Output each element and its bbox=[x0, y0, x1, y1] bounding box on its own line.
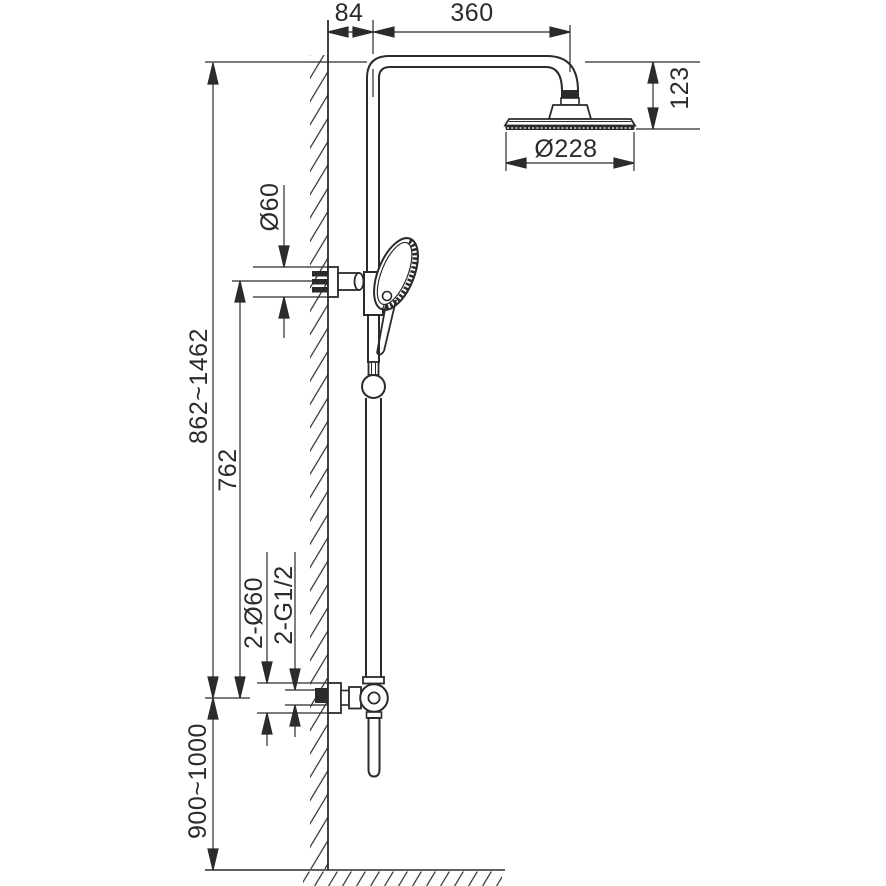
dim-thread-label: 2-G1/2 bbox=[270, 565, 298, 644]
bracket-escutcheon bbox=[328, 267, 338, 297]
dim-mixer-height-label: 900~1000 bbox=[184, 723, 212, 839]
technical-drawing: 84 360 Ø228 123 Ø60 862~1462 762 2-Ø60 2… bbox=[0, 0, 886, 886]
dim-wall-offset-label: 84 bbox=[335, 0, 364, 27]
mixer-escutcheon bbox=[328, 683, 341, 713]
slider-knob bbox=[362, 375, 385, 398]
wall-hatch bbox=[310, 55, 328, 869]
dim-escutcheon-label: 2-Ø60 bbox=[240, 577, 268, 649]
hand-shower-hook-hole bbox=[383, 292, 392, 301]
dim-arm-length-label: 360 bbox=[450, 0, 493, 27]
dim-holder-diameter-label: Ø60 bbox=[256, 183, 284, 232]
floor-hatch bbox=[303, 872, 502, 886]
dim-head-diameter-label: Ø228 bbox=[534, 135, 597, 163]
mixer-top-flange bbox=[363, 677, 384, 684]
head-cone bbox=[549, 105, 591, 119]
mixer-connector bbox=[341, 691, 349, 706]
dim-column-range-label: 862~1462 bbox=[185, 328, 213, 444]
anchor-rib bbox=[312, 279, 328, 285]
mixer-nut bbox=[349, 687, 361, 709]
dim-holder-height-label: 762 bbox=[214, 448, 242, 491]
background bbox=[0, 0, 886, 886]
bracket-arm-cap bbox=[355, 273, 364, 290]
slider-fork bbox=[369, 362, 379, 375]
anchor-rib bbox=[312, 271, 328, 277]
lever-handle bbox=[369, 718, 380, 777]
wall-section bbox=[310, 20, 328, 870]
mixer-axis bbox=[368, 692, 379, 703]
drawing-canvas: 84 360 Ø228 123 Ø60 862~1462 762 2-Ø60 2… bbox=[0, 0, 886, 886]
connector-ring bbox=[561, 98, 579, 105]
connector-nut-band bbox=[561, 90, 579, 98]
anchor-rib bbox=[312, 287, 328, 293]
mixer-wall-anchor bbox=[315, 688, 328, 703]
dim-head-drop-label: 123 bbox=[666, 66, 694, 109]
head-disc bbox=[505, 119, 635, 126]
